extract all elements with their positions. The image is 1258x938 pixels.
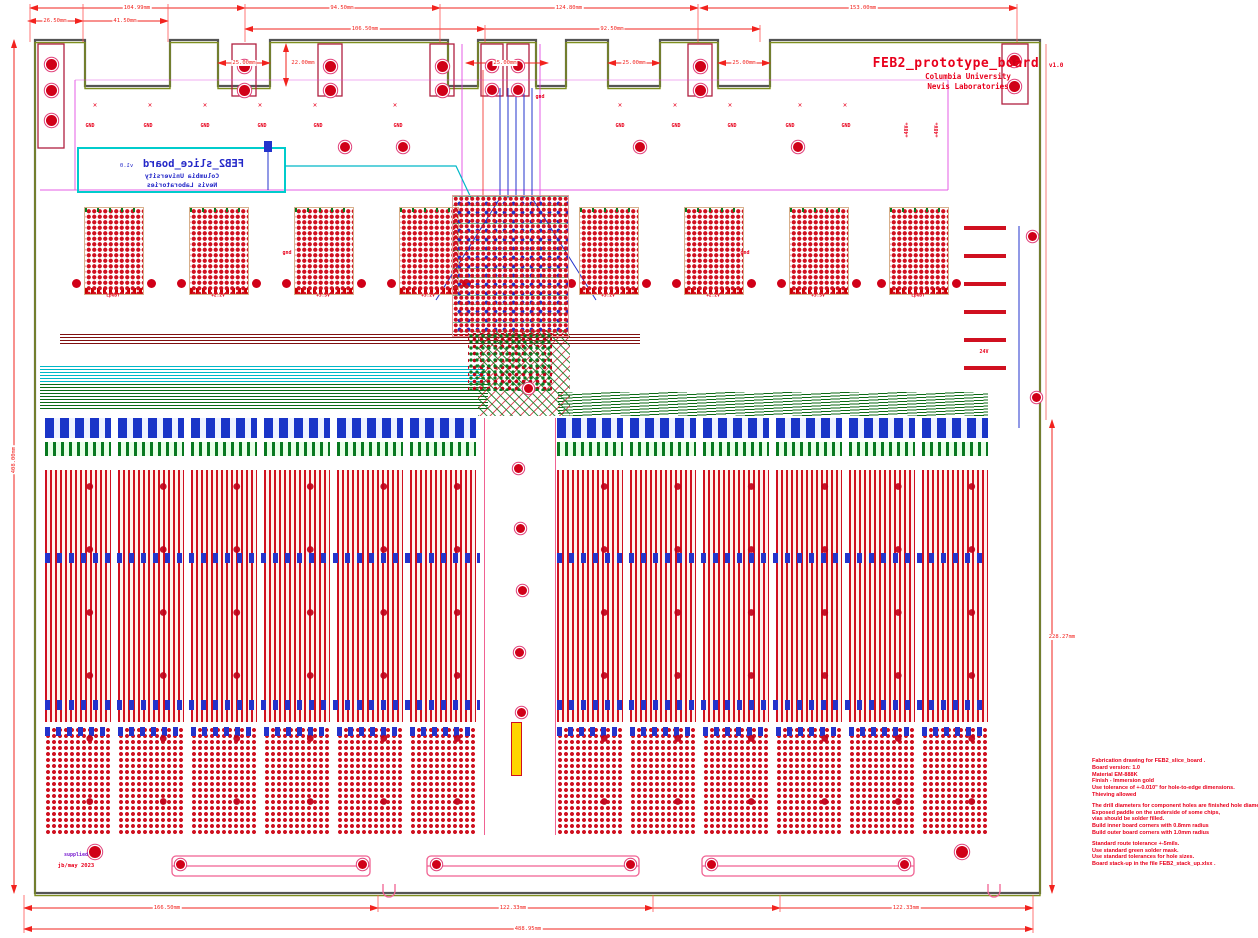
title-lab: Nevis Laboratories — [858, 82, 1078, 91]
rail-label: +2.2V — [211, 294, 225, 299]
rail-label: LpGBT — [911, 294, 925, 299]
dim-label: 25.00mm — [231, 60, 256, 66]
title-block: FEB2_prototype_board v1.0 Columbia Unive… — [858, 52, 1078, 91]
x-mark-icon: ✕ — [203, 101, 207, 109]
note-line: Standard route tolerance +-5mils. — [1092, 841, 1256, 848]
fiducial-bar — [511, 722, 522, 776]
silkscreen-org: Columbia University — [92, 172, 272, 180]
gnd-label: GND — [841, 123, 850, 129]
drill-hole — [437, 85, 448, 96]
drill-hole — [1028, 232, 1037, 241]
rail-label: +3.2V — [601, 294, 615, 299]
board-version: v1.0 — [1049, 62, 1063, 69]
dim-label: 25.00mm — [492, 60, 517, 66]
x-mark-icon: ✕ — [313, 101, 317, 109]
center-sub-cluster — [468, 333, 552, 391]
drill-hole — [89, 846, 101, 858]
footer-date: jb/may 2023 — [58, 863, 94, 869]
x-mark-icon: ✕ — [798, 101, 802, 109]
rail-label: +3.5V — [316, 294, 330, 299]
gnd-label: GND — [313, 123, 322, 129]
note-line: vias should be solder filled. — [1092, 816, 1256, 823]
dim-label: 124.80mm — [555, 5, 584, 11]
bottom-connectors — [172, 856, 1000, 897]
drill-hole — [513, 85, 523, 95]
dim-label-overall-height: 408.00mm — [11, 446, 17, 475]
rail-label: +3.2V — [421, 294, 435, 299]
drill-hole — [695, 61, 706, 72]
v24-label: 24V — [979, 349, 988, 355]
connector-module — [889, 207, 949, 295]
drill-hole — [707, 860, 716, 869]
bus-green-right — [558, 392, 988, 416]
gnd-label: GND — [615, 123, 624, 129]
gnd-label: GND — [393, 123, 402, 129]
right-side-components — [964, 226, 1006, 394]
connector-module — [294, 207, 354, 295]
drill-hole — [46, 85, 57, 96]
gnd-label: GND — [671, 123, 680, 129]
gnd-label: GND — [785, 123, 794, 129]
dim-label-overall-width: 488.95mm — [514, 926, 543, 932]
x-mark-icon: ✕ — [258, 101, 262, 109]
dim-label: 104.99mm — [123, 5, 152, 11]
note-line: Board version: 1.0 — [1092, 765, 1256, 772]
x-mark-icon: ✕ — [148, 101, 152, 109]
note-line: The drill diameters for component holes … — [1092, 803, 1256, 810]
drill-hole — [325, 61, 336, 72]
dim-label: 25.00mm — [731, 60, 756, 66]
drill-hole — [900, 860, 909, 869]
note-line: Exposed paddle on the underside of some … — [1092, 810, 1256, 817]
gnd-label: GND — [85, 123, 94, 129]
dim-label: 122.33mm — [892, 905, 921, 911]
board-title: FEB2_prototype_board — [873, 56, 1040, 71]
note-line: Finish - Immersion gold — [1092, 778, 1256, 785]
title-org: Columbia University — [858, 72, 1078, 81]
drill-hole — [517, 708, 526, 717]
fabrication-notes: Fabrication drawing for FEB2_slice_board… — [1092, 758, 1256, 868]
note-line: Board stack-up in the file FEB2_stack_up… — [1092, 861, 1256, 868]
rail-label: +3.5V — [811, 294, 825, 299]
note-line: Use standard tolerances for hole sizes. — [1092, 854, 1256, 861]
note-line: Material EM-888K — [1092, 772, 1256, 779]
drill-hole — [398, 142, 408, 152]
teal-trace — [285, 166, 472, 200]
dim-label: 106.50mm — [351, 26, 380, 32]
silkscreen-lab: Nevis Laboratories — [92, 181, 272, 189]
p48v-label: +48V+ — [934, 122, 940, 137]
drill-hole — [487, 85, 497, 95]
dim-label: 153.00mm — [849, 5, 878, 11]
drill-hole — [635, 142, 645, 152]
drill-hole — [432, 860, 441, 869]
dim-label: 41.50mm — [112, 18, 137, 24]
connector-module — [189, 207, 249, 295]
rail-label: LpGBT — [106, 294, 120, 299]
drill-hole — [46, 59, 57, 70]
connector-module — [684, 207, 744, 295]
note-line: Use standard green solder mask. — [1092, 848, 1256, 855]
drill-hole — [695, 85, 706, 96]
dim-label: 22.00mm — [290, 60, 315, 66]
blue-component — [264, 141, 272, 152]
drill-hole — [518, 586, 527, 595]
x-mark-icon: ✕ — [673, 101, 677, 109]
drill-hole — [1032, 393, 1041, 402]
dim-label: 25.00mm — [621, 60, 646, 66]
note-line: Use tolerance of +-0.010" for hole-to-ed… — [1092, 785, 1256, 792]
center-channel — [484, 418, 556, 835]
gnd-small-label: gnd — [282, 250, 291, 256]
x-mark-icon: ✕ — [393, 101, 397, 109]
drill-hole — [340, 142, 350, 152]
drill-hole — [325, 85, 336, 96]
note-line: Build inner board corners with 0.8mm rad… — [1092, 823, 1256, 830]
bus-cyan — [40, 366, 485, 382]
drill-hole — [515, 648, 524, 657]
drill-hole — [239, 85, 250, 96]
x-mark-icon: ✕ — [843, 101, 847, 109]
x-mark-icon: ✕ — [93, 101, 97, 109]
pcb-fabrication-drawing: FEB2_prototype_board v1.0 Columbia Unive… — [0, 0, 1258, 938]
note-line: Fabrication drawing for FEB2_slice_board… — [1092, 758, 1256, 765]
drill-hole — [956, 846, 968, 858]
silkscreen-version: v1.0 — [120, 163, 133, 169]
drill-hole — [514, 464, 523, 473]
drill-hole — [176, 860, 185, 869]
dim-label: 92.50mm — [599, 26, 624, 32]
note-line: Thieving allowed — [1092, 792, 1256, 799]
drill-hole — [524, 384, 533, 393]
footer-supplied-note: supplied — [64, 852, 88, 858]
silkscreen-title: FEB2_slice_board — [143, 158, 244, 170]
connector-module — [84, 207, 144, 295]
dim-label: 94.50mm — [329, 5, 354, 11]
gnd-small-label: gnd — [535, 94, 544, 100]
drill-hole — [46, 115, 57, 126]
p48v-label: +48V+ — [904, 122, 910, 137]
x-mark-icon: ✕ — [728, 101, 732, 109]
dim-label: 26.50mm — [42, 18, 67, 24]
x-mark-icon: ✕ — [618, 101, 622, 109]
dim-label: 122.33mm — [499, 905, 528, 911]
connector-module — [399, 207, 459, 295]
connector-module — [789, 207, 849, 295]
dim-label: 166.50mm — [153, 905, 182, 911]
drill-hole — [516, 524, 525, 533]
connector-module — [579, 207, 639, 295]
bus-green-left — [40, 384, 488, 410]
gnd-label: GND — [727, 123, 736, 129]
rail-label: +2.2V — [706, 294, 720, 299]
drill-hole — [437, 61, 448, 72]
gnd-label: GND — [143, 123, 152, 129]
gnd-label: GND — [200, 123, 209, 129]
drill-hole — [626, 860, 635, 869]
gnd-label: GND — [257, 123, 266, 129]
silkscreen-mirrored-block: FEB2_slice_board v1.0 Columbia Universit… — [92, 152, 272, 189]
note-line: Build outer board corners with 1.0mm rad… — [1092, 830, 1256, 837]
center-asic-cluster — [452, 195, 569, 337]
gnd-small-label: gnd — [740, 250, 749, 256]
dim-label-right: 228.27mm — [1048, 634, 1077, 640]
drill-hole — [358, 860, 367, 869]
drill-hole — [793, 142, 803, 152]
